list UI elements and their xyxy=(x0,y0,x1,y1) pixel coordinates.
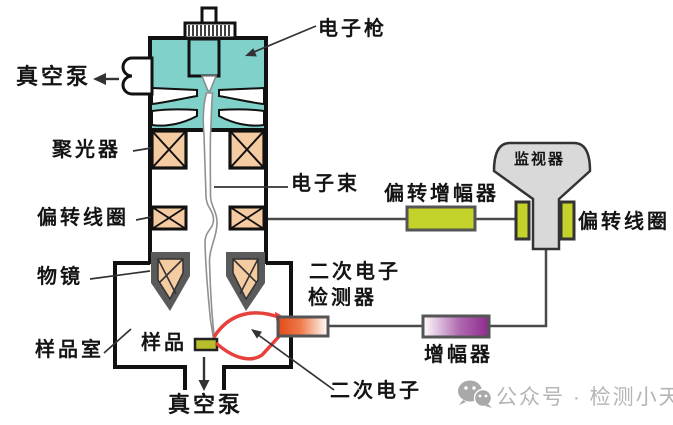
bottom-vacuum-arrow-head xyxy=(199,380,210,391)
monitor-coil-right xyxy=(561,202,574,239)
label-electron-beam: 电子束 xyxy=(291,173,360,195)
sem-schematic-figure: 电子枪 真空泵 聚光器 电子束 偏转线圈 物镜 样品 样品室 真空泵 偏转增幅器… xyxy=(0,0,673,425)
column-deflection-coils xyxy=(152,207,264,229)
vacuum-port-left xyxy=(93,58,152,94)
vacuum-arrow-head-left xyxy=(93,73,106,85)
label-se-detector-line2: 检测器 xyxy=(308,287,377,309)
label-monitor: 监视器 xyxy=(514,152,565,169)
label-electron-gun: 电子枪 xyxy=(318,18,387,40)
label-condenser: 聚光器 xyxy=(52,139,121,161)
label-deflection-amplifier: 偏转增幅器 xyxy=(384,183,499,205)
label-se-detector-line1: 二次电子 xyxy=(309,261,401,283)
se-trajectory-upper xyxy=(214,313,281,337)
label-vacuum-pump-top: 真空泵 xyxy=(16,65,91,89)
wire-amplifier-to-monitor xyxy=(489,249,546,326)
leader-secondary-electrons xyxy=(257,334,334,390)
cathode-block xyxy=(189,39,219,76)
label-deflection-coil-left: 偏转线圈 xyxy=(37,207,129,229)
monitor-coil-left xyxy=(516,202,529,239)
pump-tube xyxy=(123,58,152,94)
leader-objective xyxy=(90,271,150,279)
se-trajectory-lower xyxy=(216,331,284,359)
label-vacuum-pump-bottom: 真空泵 xyxy=(168,393,243,417)
label-objective-lens: 物镜 xyxy=(37,266,83,288)
label-deflection-coil-right: 偏转线圈 xyxy=(578,211,670,233)
wechat-icon xyxy=(458,381,492,409)
label-sample: 样品 xyxy=(141,332,187,354)
sample-stage-group xyxy=(195,339,217,391)
deflection-amplifier-box xyxy=(407,207,475,230)
label-sample-chamber: 样品室 xyxy=(35,339,104,361)
signal-wires xyxy=(260,219,546,326)
sample-block xyxy=(195,339,217,350)
watermark-text: 公众号 · 检测小天地 xyxy=(496,381,673,411)
label-secondary-electrons: 二次电子 xyxy=(330,380,422,402)
leader-sample-chamber xyxy=(104,329,131,353)
amplifier-boxes xyxy=(407,207,489,337)
secondary-electron-detector xyxy=(278,317,328,336)
amplifier-box xyxy=(423,316,489,337)
secondary-electron-group xyxy=(214,312,328,359)
label-amplifier: 增幅器 xyxy=(424,344,493,366)
